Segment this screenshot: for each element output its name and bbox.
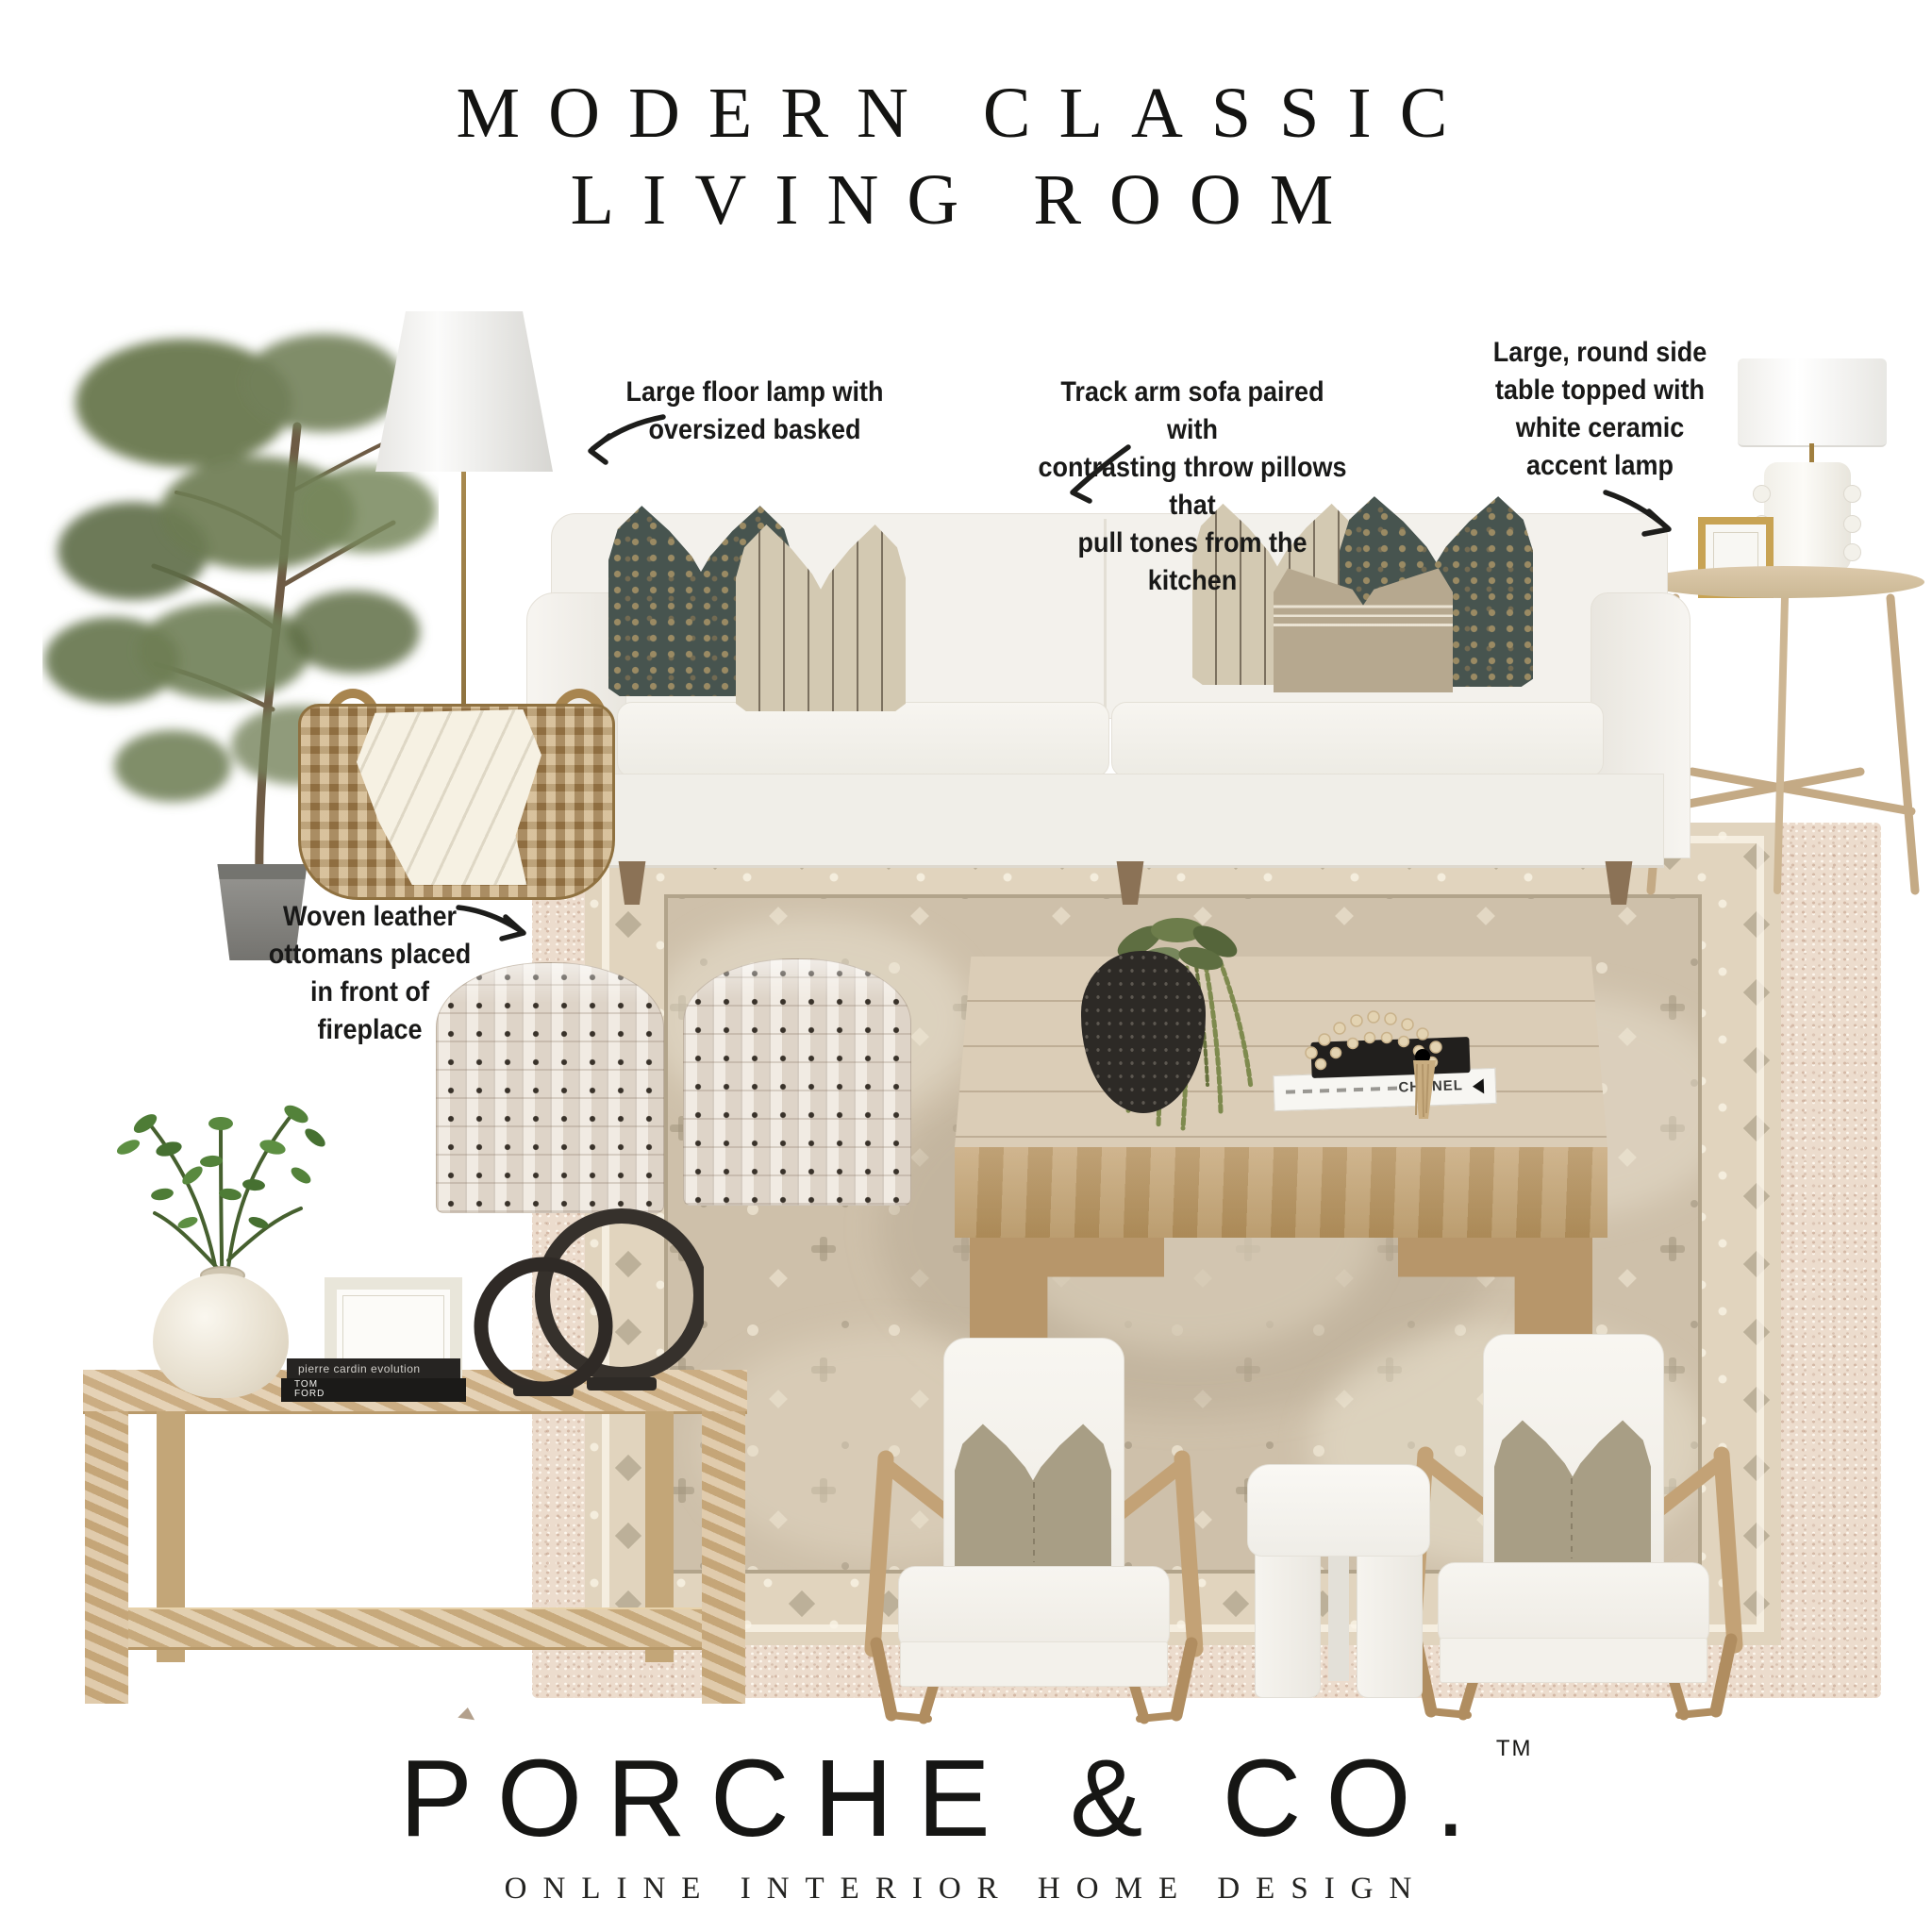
black-book-stack: pierre cardin evolution TOM FORD (281, 1358, 466, 1402)
annotation-line: in front of (268, 974, 472, 1011)
spine-mark (1473, 1078, 1485, 1093)
annotation-line: Woven leather (268, 898, 472, 936)
annotation-side-table: Large, round side table topped with whit… (1491, 334, 1708, 485)
sofa-seat-cushion-right (1111, 702, 1604, 777)
moodboard-page: MODERN CLASSIC LIVING ROOM (0, 0, 1932, 1932)
annotation-line: white ceramic (1491, 409, 1708, 447)
console-front-leg (85, 1411, 128, 1704)
annotation-line: oversized basked (608, 411, 901, 449)
lamp-bobble (1753, 485, 1771, 503)
chair-seat-rail (900, 1641, 1168, 1687)
book-spine-title: TOM FORD (294, 1380, 338, 1399)
annotation-line: table topped with (1491, 372, 1708, 409)
brand-trademark: TM (1496, 1736, 1533, 1761)
chair-seat-cushion (898, 1566, 1170, 1651)
chair-seat-cushion (1438, 1562, 1709, 1647)
page-title-line2: LIVING ROOM (0, 157, 1932, 243)
lamp-bobble (1843, 543, 1861, 561)
bead-garland-tassel (1302, 998, 1462, 1140)
stool-top (1247, 1464, 1430, 1557)
annotation-line: accent lamp (1491, 447, 1708, 485)
annotation-ottomans: Woven leather ottomans placed in front o… (268, 898, 472, 1049)
annotation-line: Large floor lamp with (608, 374, 901, 411)
annotation-line: Track arm sofa paired with (1035, 374, 1351, 449)
accent-chair (1387, 1330, 1760, 1728)
woven-leather-ottoman (683, 958, 911, 1206)
annotation-sofa: Track arm sofa paired with contrasting t… (1035, 374, 1351, 600)
woven-basket (298, 691, 615, 900)
book-tom-ford: TOM FORD (281, 1378, 466, 1402)
accent-lamp-shade (1738, 358, 1887, 447)
stool-back-leg (1328, 1551, 1349, 1681)
book-spine-title: pierre cardin evolution (298, 1362, 421, 1375)
chair-seat-rail (1440, 1638, 1707, 1683)
sofa-base (555, 774, 1664, 868)
book-pierre-cardin: pierre cardin evolution (287, 1358, 460, 1378)
stool-leg (1255, 1541, 1321, 1698)
white-plaster-stool (1247, 1464, 1428, 1702)
page-title: MODERN CLASSIC LIVING ROOM (0, 70, 1932, 243)
annotation-floor-lamp: Large floor lamp with oversized basked (608, 374, 901, 449)
console-shelf (128, 1607, 702, 1650)
accent-lamp-ceramic-base (1764, 462, 1851, 572)
lamp-bobble (1843, 485, 1861, 503)
annotation-line: Large, round side (1491, 334, 1708, 372)
page-title-line1: MODERN CLASSIC (0, 70, 1932, 157)
sofa-seat-cushion-left (617, 702, 1109, 777)
lamp-bobble (1843, 515, 1861, 533)
console-front-leg (702, 1411, 745, 1704)
stool-leg (1357, 1541, 1423, 1698)
white-ceramic-vase (153, 1274, 289, 1398)
annotation-line: pull tones from the kitchen (1035, 525, 1351, 600)
brand-name: PORCHE & CO. (400, 1737, 1491, 1859)
stray-triangle-artifact (458, 1707, 475, 1720)
accent-chair (847, 1334, 1221, 1732)
accent-lamp-neck (1809, 443, 1814, 464)
brand-footer: PORCHE & CO.TM ONLINE INTERIOR HOME DESI… (0, 1741, 1932, 1907)
black-ring-sculpture (466, 1204, 704, 1404)
annotation-line: fireplace (268, 1011, 472, 1049)
annotation-line: contrasting throw pillows that (1035, 449, 1351, 525)
brand-tagline: ONLINE INTERIOR HOME DESIGN (0, 1872, 1932, 1907)
floor-lamp-shade (375, 311, 553, 472)
annotation-line: ottomans placed (268, 936, 472, 974)
oak-console-table (83, 1370, 747, 1707)
